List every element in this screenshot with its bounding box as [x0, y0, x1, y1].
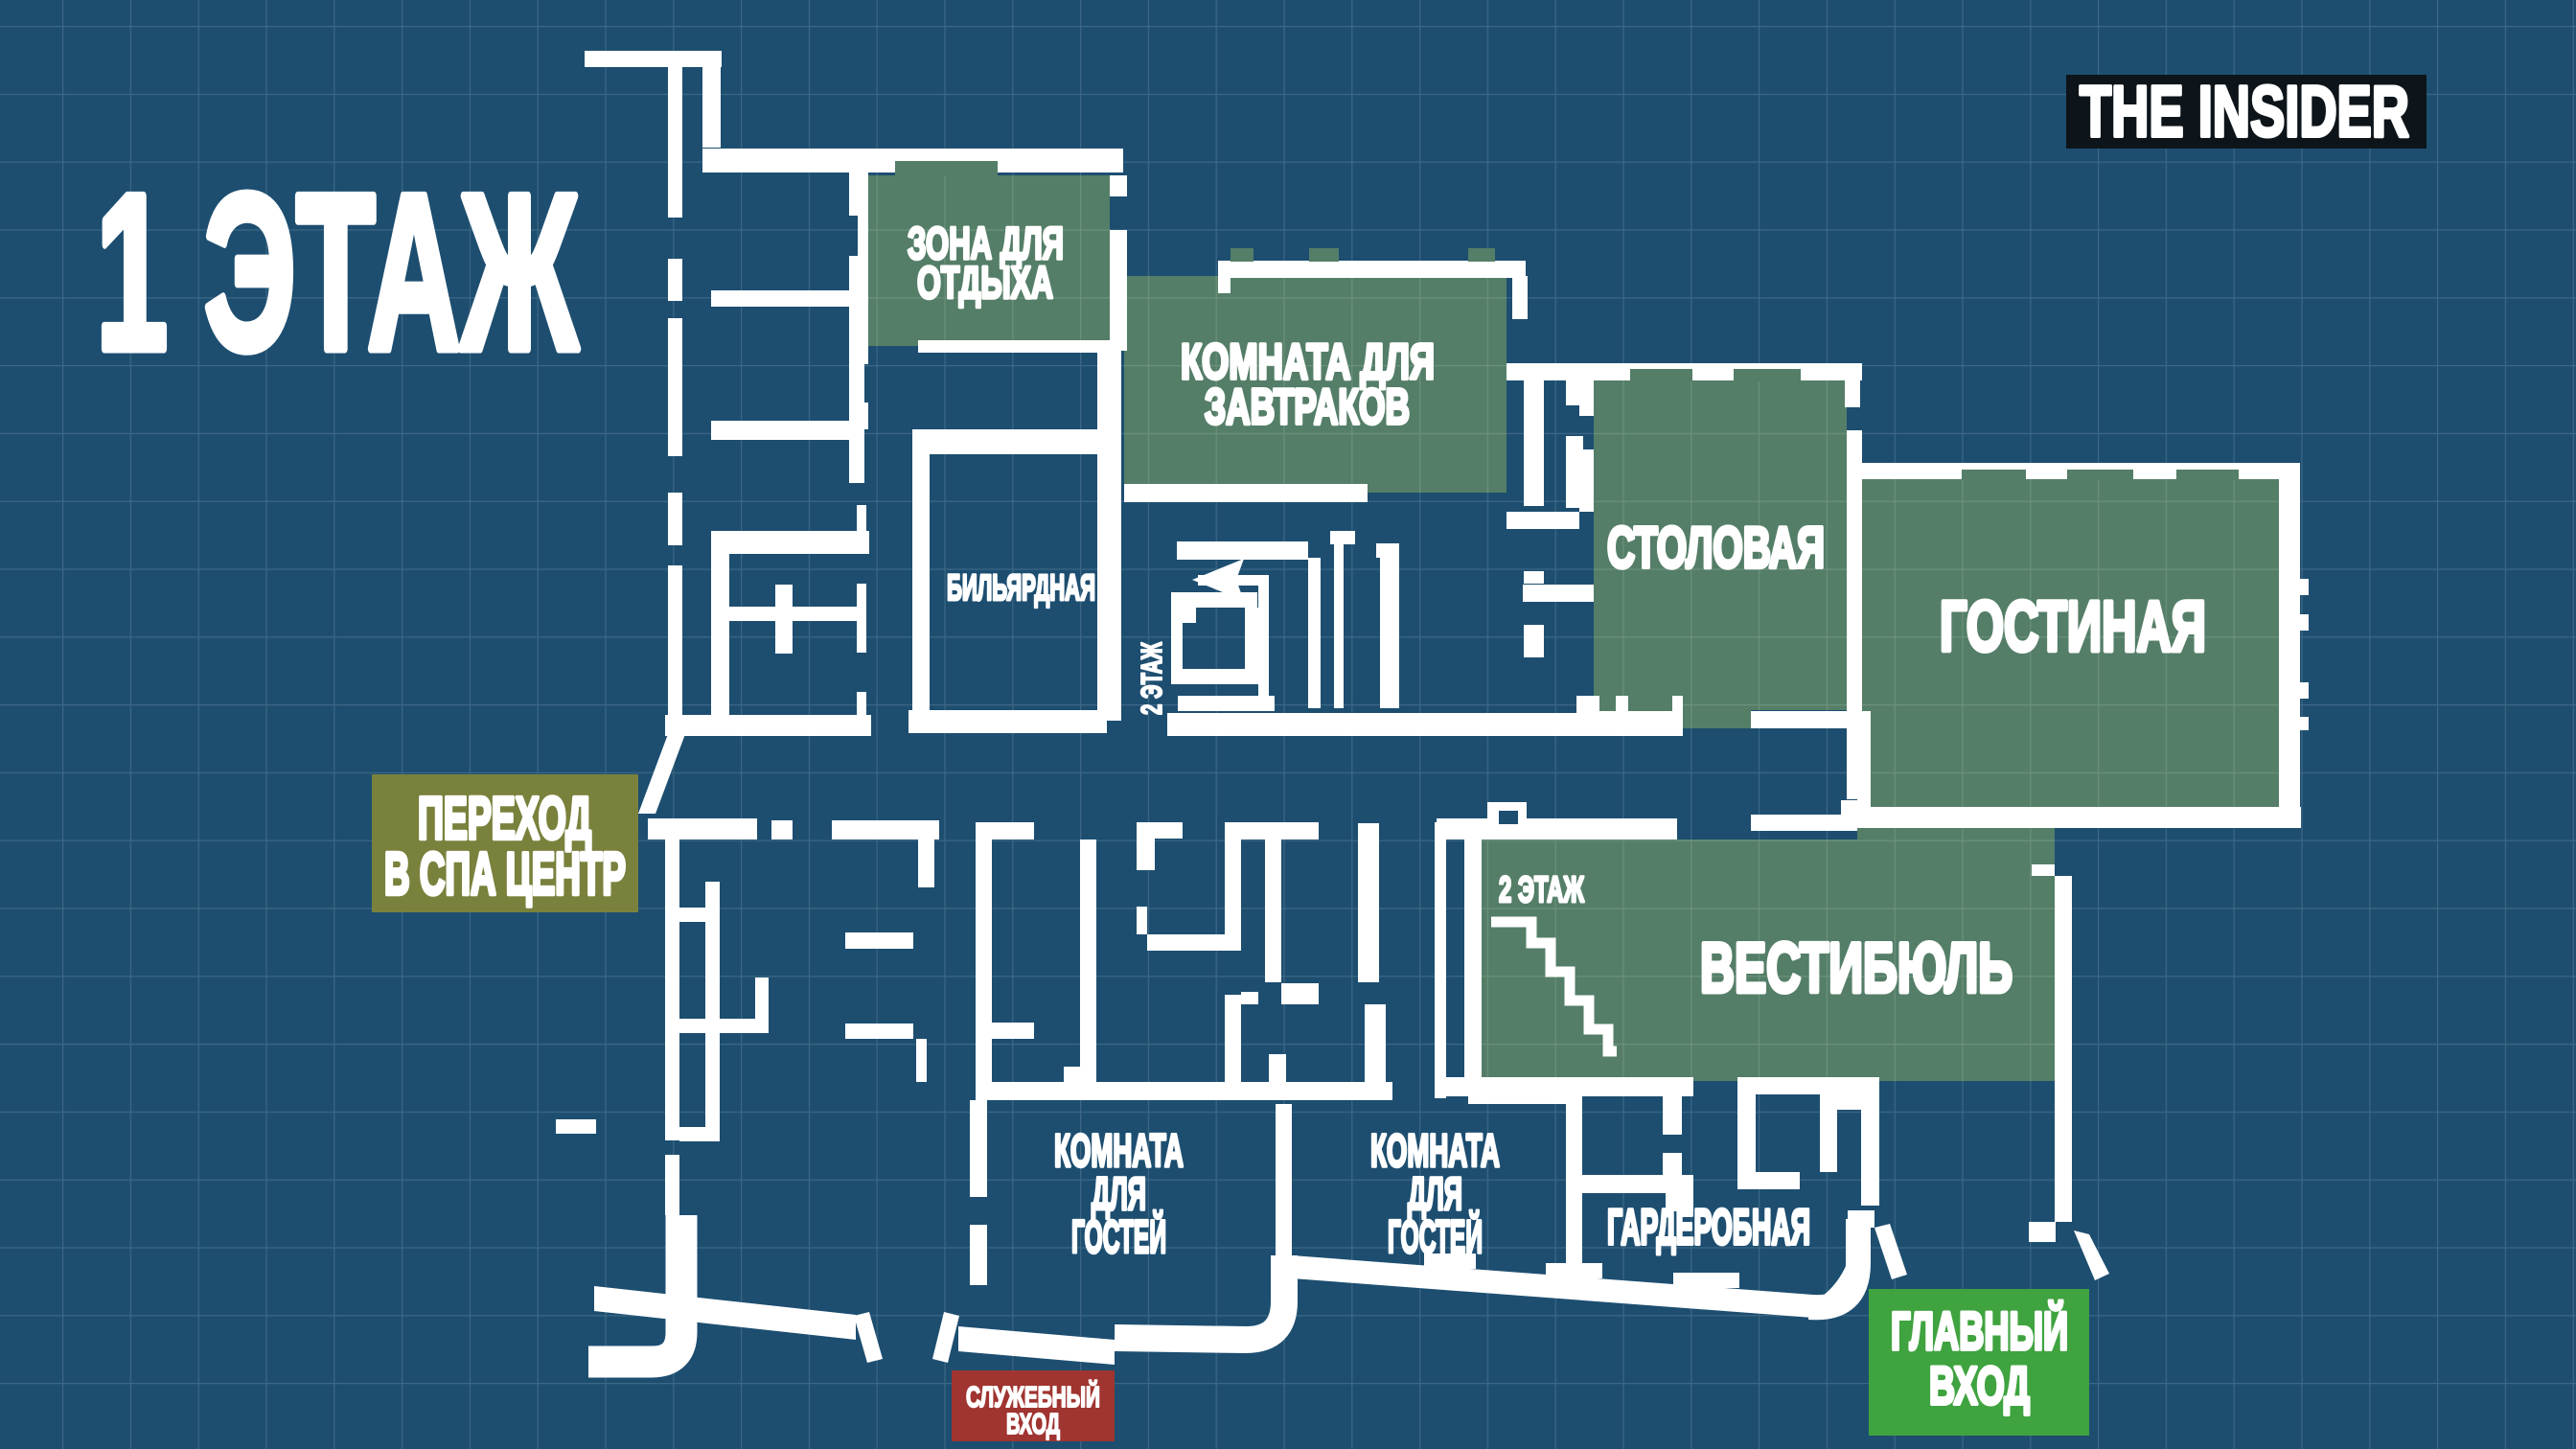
svg-text:ГОСТЕЙ: ГОСТЕЙ [1388, 1210, 1483, 1263]
svg-text:ГЛАВНЫЙ: ГЛАВНЫЙ [1891, 1300, 2068, 1361]
svg-text:2 ЭТАЖ: 2 ЭТАЖ [1499, 870, 1584, 910]
svg-text:ГОСТЕЙ: ГОСТЕЙ [1071, 1210, 1166, 1263]
svg-text:СТОЛОВАЯ: СТОЛОВАЯ [1607, 516, 1825, 580]
svg-text:БИЛЬЯРДНАЯ: БИЛЬЯРДНАЯ [947, 568, 1095, 609]
svg-text:ВЕСТИБЮЛЬ: ВЕСТИБЮЛЬ [1700, 930, 2012, 1007]
svg-text:1 ЭТАЖ: 1 ЭТАЖ [96, 149, 579, 397]
svg-text:В СПА ЦЕНТР: В СПА ЦЕНТР [384, 841, 626, 908]
svg-text:2 ЭТАЖ: 2 ЭТАЖ [1135, 641, 1168, 715]
svg-text:THE INSIDER: THE INSIDER [2080, 71, 2409, 151]
svg-text:ВХОД: ВХОД [1929, 1355, 2030, 1415]
svg-text:ЗАВТРАКОВ: ЗАВТРАКОВ [1205, 379, 1410, 435]
svg-text:ВХОД: ВХОД [1006, 1407, 1060, 1440]
svg-text:ОТДЫХА: ОТДЫХА [917, 257, 1053, 308]
svg-text:ГАРДЕРОБНАЯ: ГАРДЕРОБНАЯ [1607, 1200, 1810, 1255]
svg-text:ГОСТИНАЯ: ГОСТИНАЯ [1940, 586, 2206, 666]
